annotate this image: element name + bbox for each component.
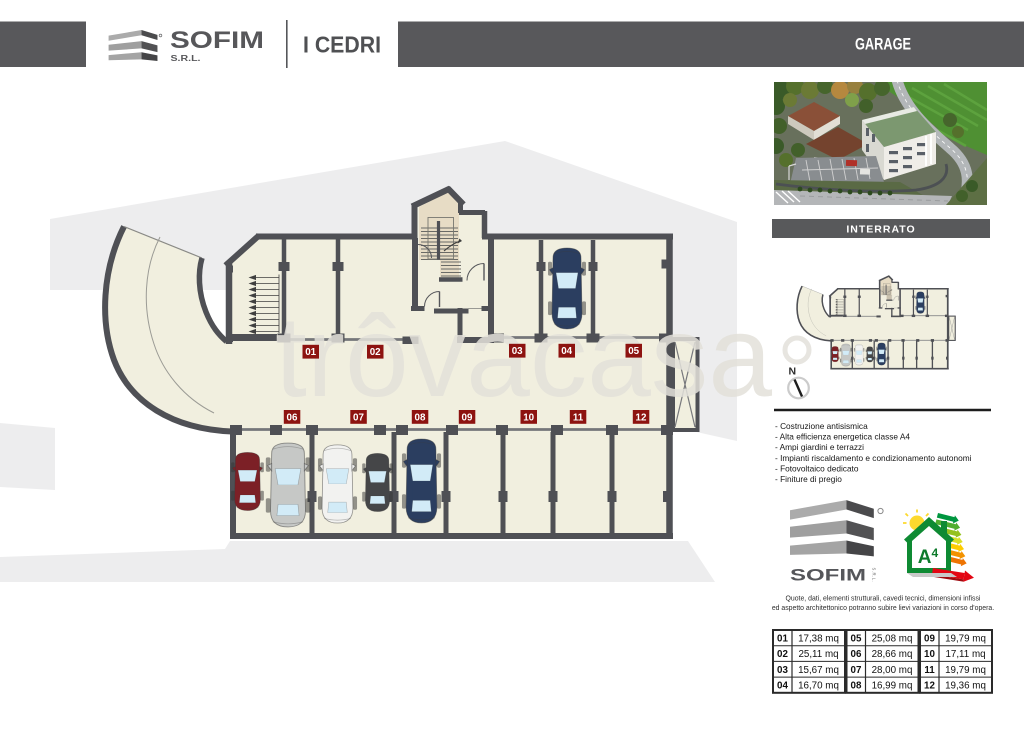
svg-text:08: 08 (415, 412, 426, 423)
svg-text:04: 04 (777, 681, 788, 692)
svg-text:01: 01 (777, 633, 788, 644)
svg-text:17,38 mq: 17,38 mq (798, 633, 839, 644)
svg-text:09: 09 (462, 412, 473, 423)
svg-text:- Finiture di pregio: - Finiture di pregio (775, 474, 842, 484)
svg-text:- Alta efficienza energetica c: - Alta efficienza energetica classe A4 (775, 432, 910, 442)
svg-text:16,99 mq: 16,99 mq (872, 681, 913, 692)
svg-text:01: 01 (305, 347, 316, 358)
svg-text:- Fotovoltaico dedicato: - Fotovoltaico dedicato (775, 463, 859, 473)
svg-text:SOFIM: SOFIM (170, 27, 264, 54)
svg-text:12: 12 (636, 412, 647, 423)
svg-text:N: N (789, 366, 797, 378)
svg-text:04: 04 (561, 346, 572, 357)
svg-text:11: 11 (924, 665, 935, 676)
svg-text:16,70 mq: 16,70 mq (798, 681, 839, 692)
svg-text:S.R.L.: S.R.L. (872, 568, 877, 583)
svg-text:28,00 mq: 28,00 mq (872, 665, 913, 676)
svg-text:07: 07 (353, 412, 364, 423)
svg-text:03: 03 (512, 346, 523, 357)
svg-text:02: 02 (370, 347, 381, 358)
svg-text:25,08 mq: 25,08 mq (872, 633, 913, 644)
svg-text:Quote, dati, elementi struttur: Quote, dati, elementi strutturali, caved… (786, 596, 981, 603)
svg-text:05: 05 (628, 346, 639, 357)
svg-text:08: 08 (851, 681, 862, 692)
svg-text:07: 07 (851, 665, 862, 676)
svg-text:GARAGE: GARAGE (855, 36, 911, 54)
svg-text:12: 12 (924, 681, 935, 692)
svg-text:INTERRATO: INTERRATO (846, 224, 915, 236)
svg-text:06: 06 (851, 649, 862, 660)
svg-text:03: 03 (777, 665, 788, 676)
svg-text:10: 10 (924, 649, 935, 660)
svg-text:15,67 mq: 15,67 mq (798, 665, 839, 676)
svg-text:- Impianti riscaldamento e con: - Impianti riscaldamento e condizionamen… (775, 453, 972, 463)
svg-text:11: 11 (573, 412, 584, 423)
svg-text:- Ampi giardini e terrazzi: - Ampi giardini e terrazzi (775, 442, 864, 452)
svg-text:ed aspetto architettonico potr: ed aspetto architettonico potranno subir… (772, 605, 994, 612)
svg-text:02: 02 (777, 649, 788, 660)
svg-text:19,36 mq: 19,36 mq (945, 681, 986, 692)
svg-text:06: 06 (287, 412, 298, 423)
svg-text:17,11 mq: 17,11 mq (945, 649, 985, 660)
svg-text:19,79 mq: 19,79 mq (945, 633, 986, 644)
svg-text:S.R.L.: S.R.L. (171, 53, 201, 63)
svg-text:09: 09 (924, 633, 935, 644)
svg-text:I CEDRI: I CEDRI (303, 32, 381, 58)
svg-text:10: 10 (523, 412, 534, 423)
svg-text:25,11 mq: 25,11 mq (798, 649, 838, 660)
svg-text:SOFIM: SOFIM (790, 567, 866, 585)
svg-text:28,66 mq: 28,66 mq (872, 649, 913, 660)
svg-text:19,79 mq: 19,79 mq (945, 665, 986, 676)
svg-text:05: 05 (851, 633, 862, 644)
svg-text:- Costruzione antisismica: - Costruzione antisismica (775, 421, 868, 431)
